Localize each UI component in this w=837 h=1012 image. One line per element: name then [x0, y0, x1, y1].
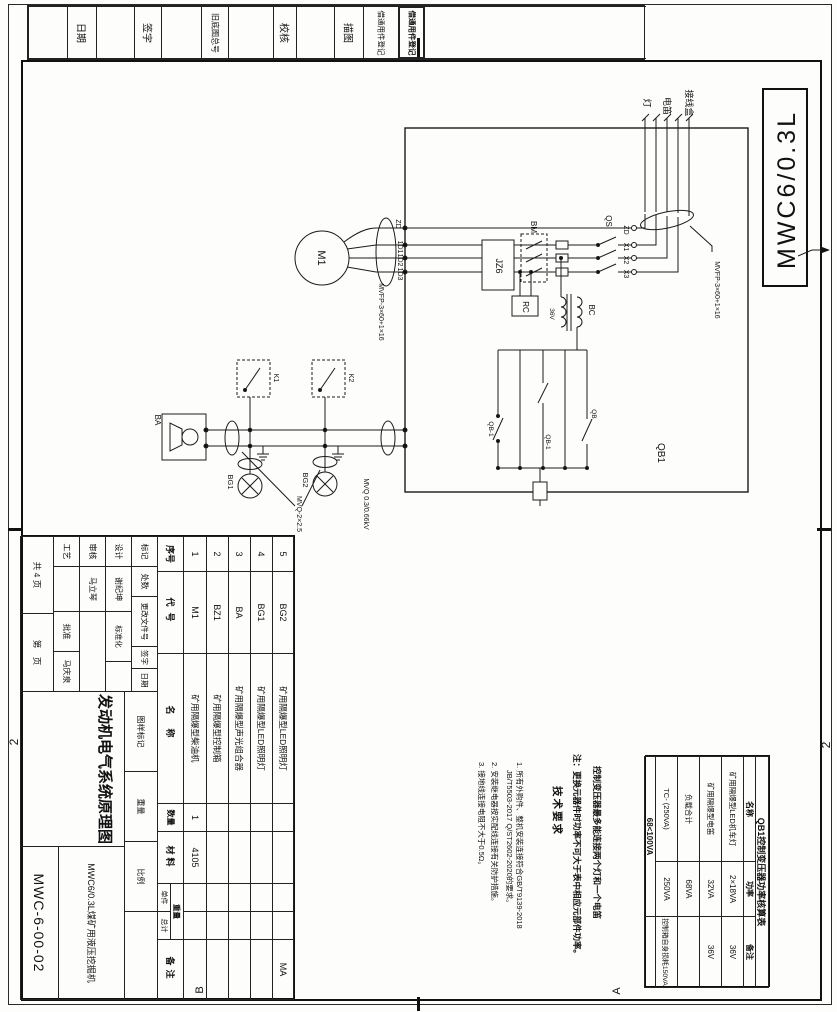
- tb-check-extra: [79, 611, 106, 692]
- bg2-label: BG2: [301, 472, 310, 487]
- tb-check-name: 马立琴: [79, 566, 106, 612]
- parts-row-name: 矿用隔爆型LED照明灯: [250, 653, 273, 804]
- tb-design-label: 设计: [105, 536, 132, 567]
- tb-rev-mark: 标记: [131, 536, 158, 567]
- parts-row-name: 矿用隔爆型控制箱: [206, 653, 229, 804]
- parts-header-code: 代号: [157, 571, 184, 654]
- qb1-box-outline: [405, 128, 748, 492]
- tb-machine-model: MWC6/0.3L煤矿用液压挖掘机: [58, 846, 125, 1000]
- horn-box: [162, 414, 206, 460]
- tb-weight-label: 重量: [124, 771, 158, 842]
- switch-box-1: [237, 360, 270, 397]
- tech-req-line: JB/T5503-2017 Q/ST2602-2020的要求。: [504, 770, 515, 907]
- parts-row-no: 2: [206, 536, 229, 572]
- parts-header-no: 序号: [157, 536, 184, 572]
- wire-label-1d1: 1D1: [396, 241, 403, 254]
- tb-stage-label: 图样标记: [124, 691, 158, 772]
- power-row-power: 68VA: [677, 861, 700, 917]
- parts-row-qty: [250, 803, 273, 832]
- parts-row-no: 4: [250, 536, 273, 572]
- qb1-contact-label-1: QB-1: [487, 421, 494, 437]
- parts-row-unit-weight: [206, 883, 229, 912]
- parts-row-total-weight: [250, 911, 273, 940]
- parts-row-material: [228, 831, 251, 884]
- parts-row-unit-weight: [250, 883, 273, 912]
- terminal-x3: X3: [622, 270, 629, 279]
- cable-spec-label-top: MVFP-3×60+1×16: [713, 261, 720, 319]
- gnd-wire-label: ZD: [394, 219, 401, 228]
- switch-box-2: [312, 360, 345, 397]
- tb-stage-extra: [124, 911, 158, 1000]
- parts-header-material: 材料: [157, 831, 184, 884]
- power-row-name: 负载合计: [677, 756, 700, 862]
- tb-rev-count: 处数: [131, 566, 158, 597]
- power-row-power: 250VA: [655, 861, 678, 917]
- contactor-label: JZ6: [494, 258, 504, 273]
- tech-req-line: 3. 接地线连接电阻不大于0.5Ω。: [476, 762, 487, 869]
- cable2-label: MVQ-2×2.5: [295, 496, 302, 532]
- parts-row-material: 4105: [183, 831, 207, 884]
- parts-row-unit-weight: [183, 883, 207, 912]
- tb-scale-label: 比例: [124, 841, 158, 912]
- power-table-h-name: 名称: [743, 756, 756, 862]
- bottom-component: [533, 482, 547, 500]
- parts-row-name: 矿用隔爆型LED照明灯: [272, 653, 294, 804]
- parts-row-code: BG2: [272, 571, 294, 654]
- parts-row-total-weight: [183, 911, 207, 940]
- note-line-1: 控制变压器最多能连接两个灯和一个电笛: [591, 766, 603, 919]
- power-row-note: [677, 916, 700, 988]
- power-table-h-note: 备注: [743, 916, 756, 988]
- parts-header-total: 总计: [157, 911, 171, 940]
- parts-row-material: [250, 831, 273, 884]
- parts-row-qty: 1: [183, 803, 207, 832]
- tech-req-line: 1. 所有外购件、整机安装连接符合GB/T9139-2018: [514, 762, 525, 929]
- notes-block: 控制变压器最多能连接两个灯和一个电笛 注：更换元器件时功率不可大于表中相应元部件…: [563, 750, 613, 995]
- power-table-h-power: 功率: [743, 861, 756, 917]
- power-row-name: 矿用隔爆型电笛: [699, 756, 722, 862]
- horn-symbol: [182, 429, 198, 445]
- terminal-x1: X1: [622, 243, 629, 252]
- tb-design-name: 谢纪坤: [105, 566, 132, 612]
- cable-gland-horn: [225, 421, 239, 455]
- parts-header-name: 名称: [157, 653, 184, 804]
- tb-drawing-number: MWC-6-00-02: [20, 846, 59, 1000]
- tech-requirements: 技术要求 1. 所有外购件、整机安装连接符合GB/T9139-2018 JB/T…: [478, 758, 566, 1000]
- parts-row-no: 1: [183, 536, 207, 572]
- power-row-power: 32VA: [699, 861, 722, 917]
- qb1-box-label: QB1: [655, 443, 666, 463]
- parts-row-code: BG1: [250, 571, 273, 654]
- parts-row-note: [250, 939, 273, 1000]
- wire-label-1d3: 1D3: [396, 268, 403, 281]
- tb-page-no: 第 页: [20, 613, 54, 692]
- drawing-sheet: 2 2 B A 日期 签字 旧底图总号 校核 描图 借通用件登记 借通用件登记 …: [0, 0, 837, 1012]
- parts-row-code: M1: [183, 571, 207, 654]
- parts-row-material: [206, 831, 229, 884]
- transformer-voltage: 36V: [548, 308, 555, 320]
- tb-approve-label: 批准: [53, 611, 80, 652]
- cable-gland-qb1: [381, 421, 395, 455]
- qb-label: QB: [590, 409, 597, 418]
- parts-row-unit-weight: [272, 883, 294, 912]
- tech-req-line: 2. 安装继电器按实配线连接有关防护措施。: [489, 762, 500, 905]
- parts-header-qty: 数量: [157, 803, 184, 832]
- ext-horn-label: 电笛: [662, 97, 673, 115]
- parts-row-no: 3: [228, 536, 251, 572]
- note-line-2: 注：更换元器件时功率不可大于表中相应元部件功率。: [571, 754, 583, 958]
- power-table: QB1控制变压器功率核算表 名称 功率 备注 矿用隔爆型LED机车灯 2×18V…: [645, 755, 770, 987]
- power-table-footer: 68<100VA: [644, 756, 656, 917]
- parts-header-note: 备注: [157, 939, 184, 1000]
- power-row-name: 矿用隔爆型LED机车灯: [721, 756, 744, 862]
- ext-junction-box-label: 接线盒: [684, 89, 695, 116]
- parts-row-note: [206, 939, 229, 1000]
- tb-process-label: 工艺: [53, 536, 80, 567]
- bm-label: BM: [529, 221, 538, 233]
- parts-row-qty: [272, 803, 294, 832]
- parts-row-note: [228, 939, 251, 1000]
- tb-rev-doc-no: 更改文件号: [131, 596, 158, 647]
- parts-row-qty: [228, 803, 251, 832]
- direction-arrow: [822, 247, 830, 253]
- tb-standard-label: 标准化: [105, 611, 132, 662]
- tb-pages-total: 共 4 页: [20, 536, 54, 614]
- power-row-note: 36V: [721, 916, 744, 988]
- bg1-label: BG1: [226, 474, 235, 489]
- motor-label: M1: [315, 250, 327, 265]
- tb-check-label: 审核: [79, 536, 106, 567]
- power-table-footer-note: [644, 916, 656, 988]
- parts-row-name: 矿用隔爆型声光组合器: [228, 653, 251, 804]
- tb-drawing-title: 发动机电气系统原理图: [20, 691, 125, 847]
- parts-row-code: BA: [228, 571, 251, 654]
- tb-rev-date: 日期: [131, 668, 158, 692]
- power-row-note: 36V: [699, 916, 722, 988]
- k2-label: K2: [347, 374, 354, 383]
- qs-label: QS: [604, 215, 613, 227]
- parts-row-note: [183, 939, 207, 1000]
- transformer-label: BC: [587, 304, 596, 315]
- parts-row-unit-weight: [228, 883, 251, 912]
- k1-label: K1: [272, 374, 279, 383]
- power-row-power: 2×18VA: [721, 861, 744, 917]
- tb-rev-sign: 签字: [131, 646, 158, 669]
- cable3-label: MVQ 0.3/0.66kV: [362, 478, 369, 530]
- power-table-title: QB1控制变压器功率核算表: [755, 756, 769, 988]
- ba-label: BA: [153, 415, 162, 426]
- power-row-note: 控制箱自身损耗150VA: [655, 916, 678, 988]
- wire-label-1d2: 1D2: [396, 254, 403, 267]
- terminal-x2: X2: [622, 256, 629, 265]
- parts-row-total-weight: [228, 911, 251, 940]
- parts-and-title-block: 5 BG2 矿用隔爆型LED照明灯 MA 4 BG1 矿用隔爆型LED照明灯 3…: [21, 535, 295, 999]
- parts-row-no: 5: [272, 536, 294, 572]
- tb-process-name: [53, 566, 80, 612]
- parts-row-material: [272, 831, 294, 884]
- transformer-secondary: [577, 297, 582, 327]
- ext-lamp-label: 灯: [642, 98, 652, 107]
- parts-row-total-weight: [272, 911, 294, 940]
- qb1-contact-label-2: QB-1: [544, 434, 551, 450]
- parts-header-unit: 单件: [157, 883, 171, 912]
- transformer-primary: [561, 297, 566, 327]
- parts-row-total-weight: [206, 911, 229, 940]
- tb-approve-name: 马庆泉: [53, 651, 80, 692]
- rc-label: RC: [521, 301, 530, 313]
- power-row-name: TC- (250VA): [655, 756, 678, 862]
- cable-spec-label-motor: MVFP-3×60+1×16: [377, 283, 384, 341]
- parts-row-qty: [206, 803, 229, 832]
- terminal-zd: ZD: [622, 225, 629, 234]
- parts-row-note: MA: [272, 939, 294, 1000]
- parts-row-name: 矿用隔爆型柴油机: [183, 653, 207, 804]
- parts-header-weight: 重量: [170, 883, 184, 940]
- parts-row-code: BZ1: [206, 571, 229, 654]
- tb-standard-name: [105, 661, 132, 692]
